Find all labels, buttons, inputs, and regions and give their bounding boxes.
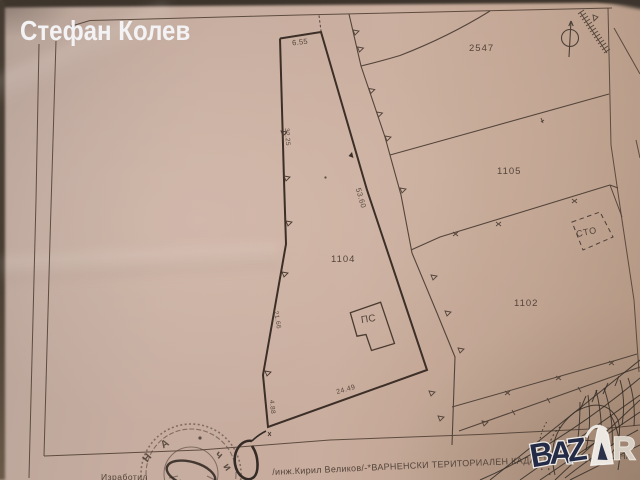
svg-text:и: и	[220, 461, 234, 473]
svg-text:R: R	[613, 430, 636, 466]
svg-text:ч: ч	[213, 448, 225, 461]
svg-text:А: А	[158, 437, 171, 451]
